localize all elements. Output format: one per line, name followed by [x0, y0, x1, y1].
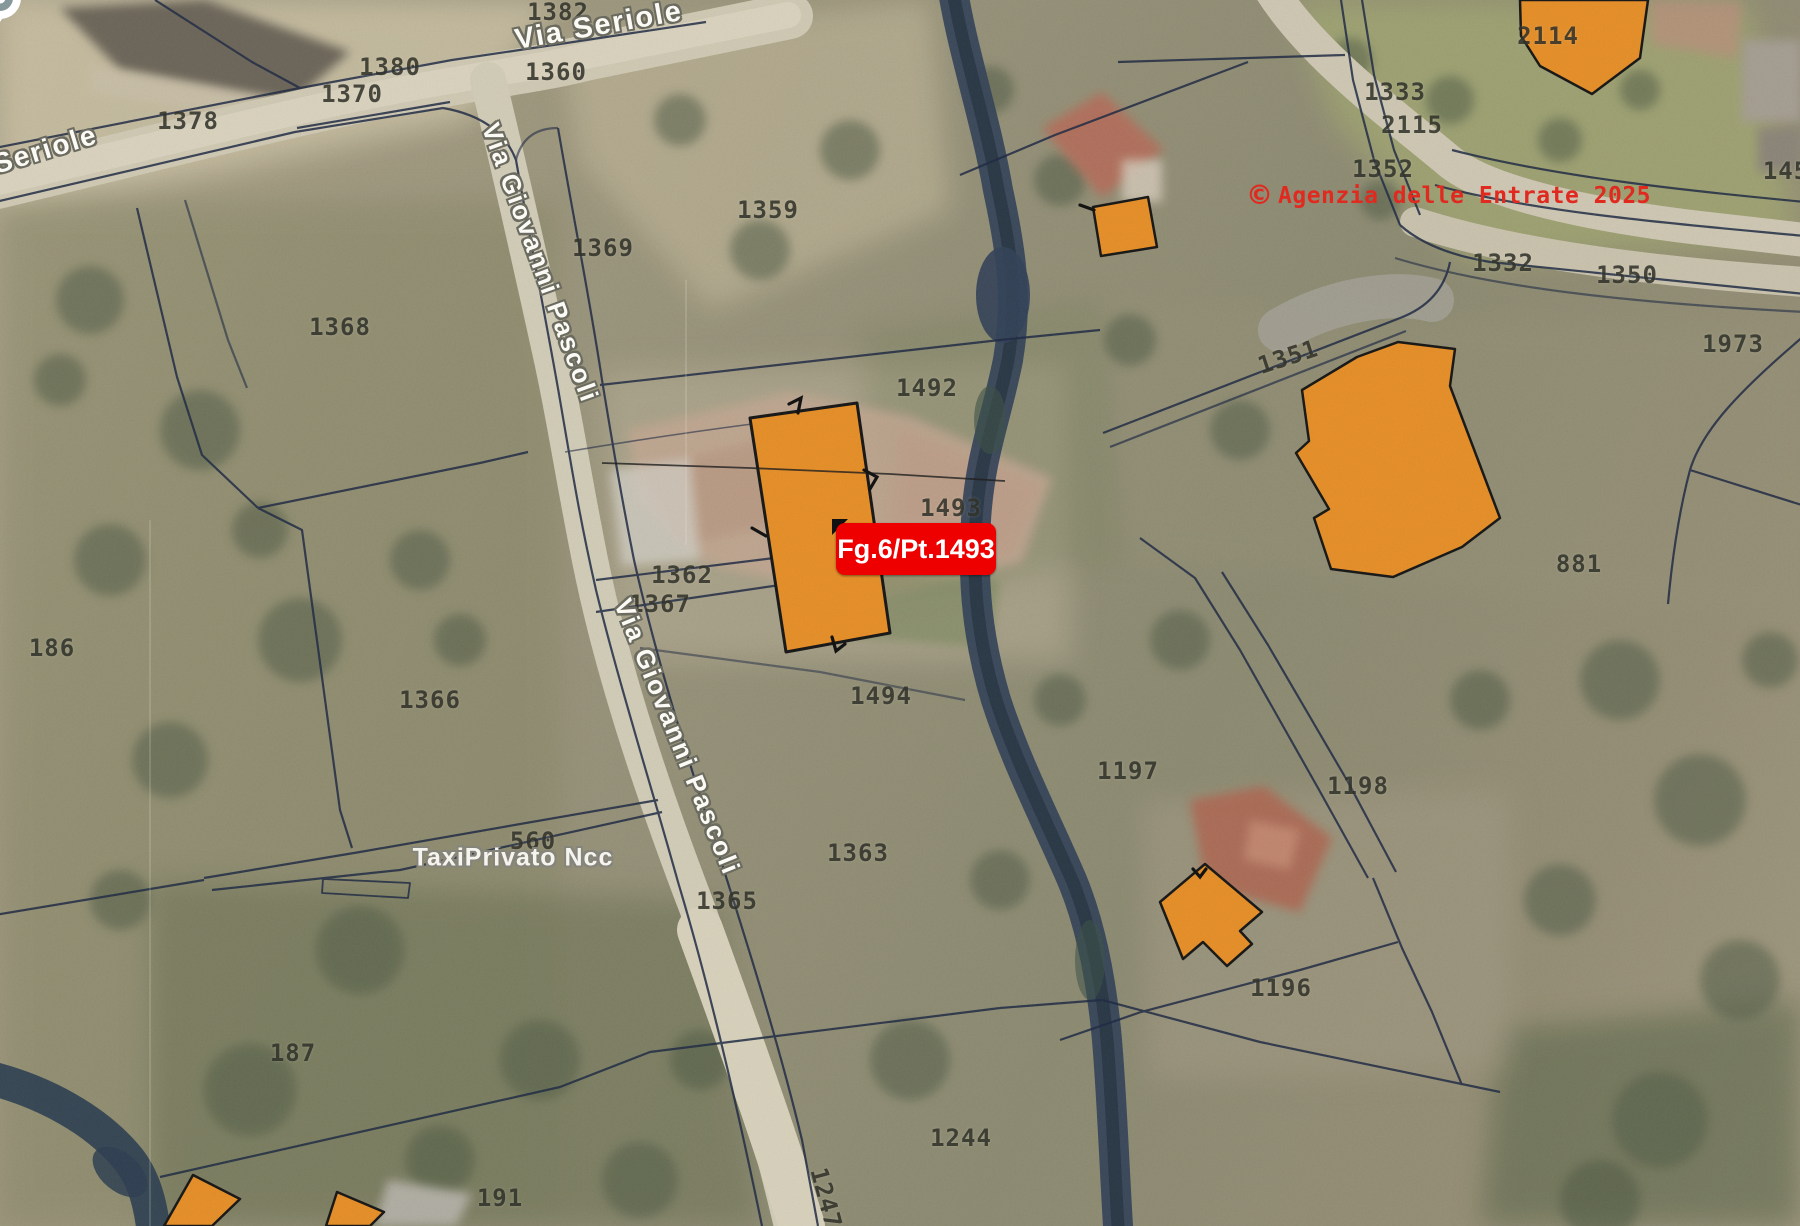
parcel-label: 2115 [1381, 111, 1443, 139]
highlight-parcel-callout: Fg.6/Pt.1493 [836, 523, 996, 575]
parcel-label: 1198 [1327, 772, 1389, 800]
parcel-label: 1197 [1097, 757, 1159, 785]
agency-watermark-text: Agenzia delle Entrate 2025 [1278, 183, 1651, 209]
parcel-label: 2114 [1517, 22, 1579, 50]
highlight-parcel-callout-text: Fg.6/Pt.1493 [837, 534, 995, 565]
parcel-label: 1196 [1250, 974, 1312, 1002]
parcel-label: 187 [270, 1039, 316, 1067]
parcel-label: 1493 [920, 494, 982, 522]
parcel-label: 1362 [651, 561, 713, 589]
parcel-label: 1370 [321, 80, 383, 108]
cadastral-map-viewport[interactable]: 1382 1380 1370 1378 1360 1369 1368 1359 … [0, 0, 1800, 1226]
parcel-label: 1492 [896, 374, 958, 402]
parcel-label: 1494 [850, 682, 912, 710]
parcel-label: 1352 [1352, 155, 1414, 183]
parcel-label: 1360 [525, 58, 587, 86]
parcel-label: 1973 [1702, 330, 1764, 358]
parcel-label: 1244 [930, 1124, 992, 1152]
parcel-label: 1350 [1596, 261, 1658, 289]
parcel-label: 1369 [572, 234, 634, 262]
parcel-label: 145 [1763, 157, 1800, 185]
parcel-label: 881 [1556, 550, 1602, 578]
parcel-label: 1368 [309, 313, 371, 341]
poi-marker-icon[interactable] [0, 0, 23, 23]
agency-watermark: © Agenzia delle Entrate 2025 [1246, 180, 1651, 211]
parcel-label: 1378 [157, 107, 219, 135]
parcel-label: 191 [477, 1184, 523, 1212]
parcel-label: 1332 [1472, 249, 1534, 277]
parcel-label: 186 [29, 634, 75, 662]
parcel-label: 1359 [737, 196, 799, 224]
parcel-label: 1365 [696, 887, 758, 915]
copyright-icon: © [1246, 180, 1273, 211]
parcel-label: 1366 [399, 686, 461, 714]
parcel-label: 1333 [1364, 78, 1426, 106]
parcel-label: 1363 [827, 839, 889, 867]
poi-label-taxiprivato-ncc[interactable]: TaxiPrivato Ncc [413, 844, 614, 873]
parcel-label: 1380 [359, 53, 421, 81]
